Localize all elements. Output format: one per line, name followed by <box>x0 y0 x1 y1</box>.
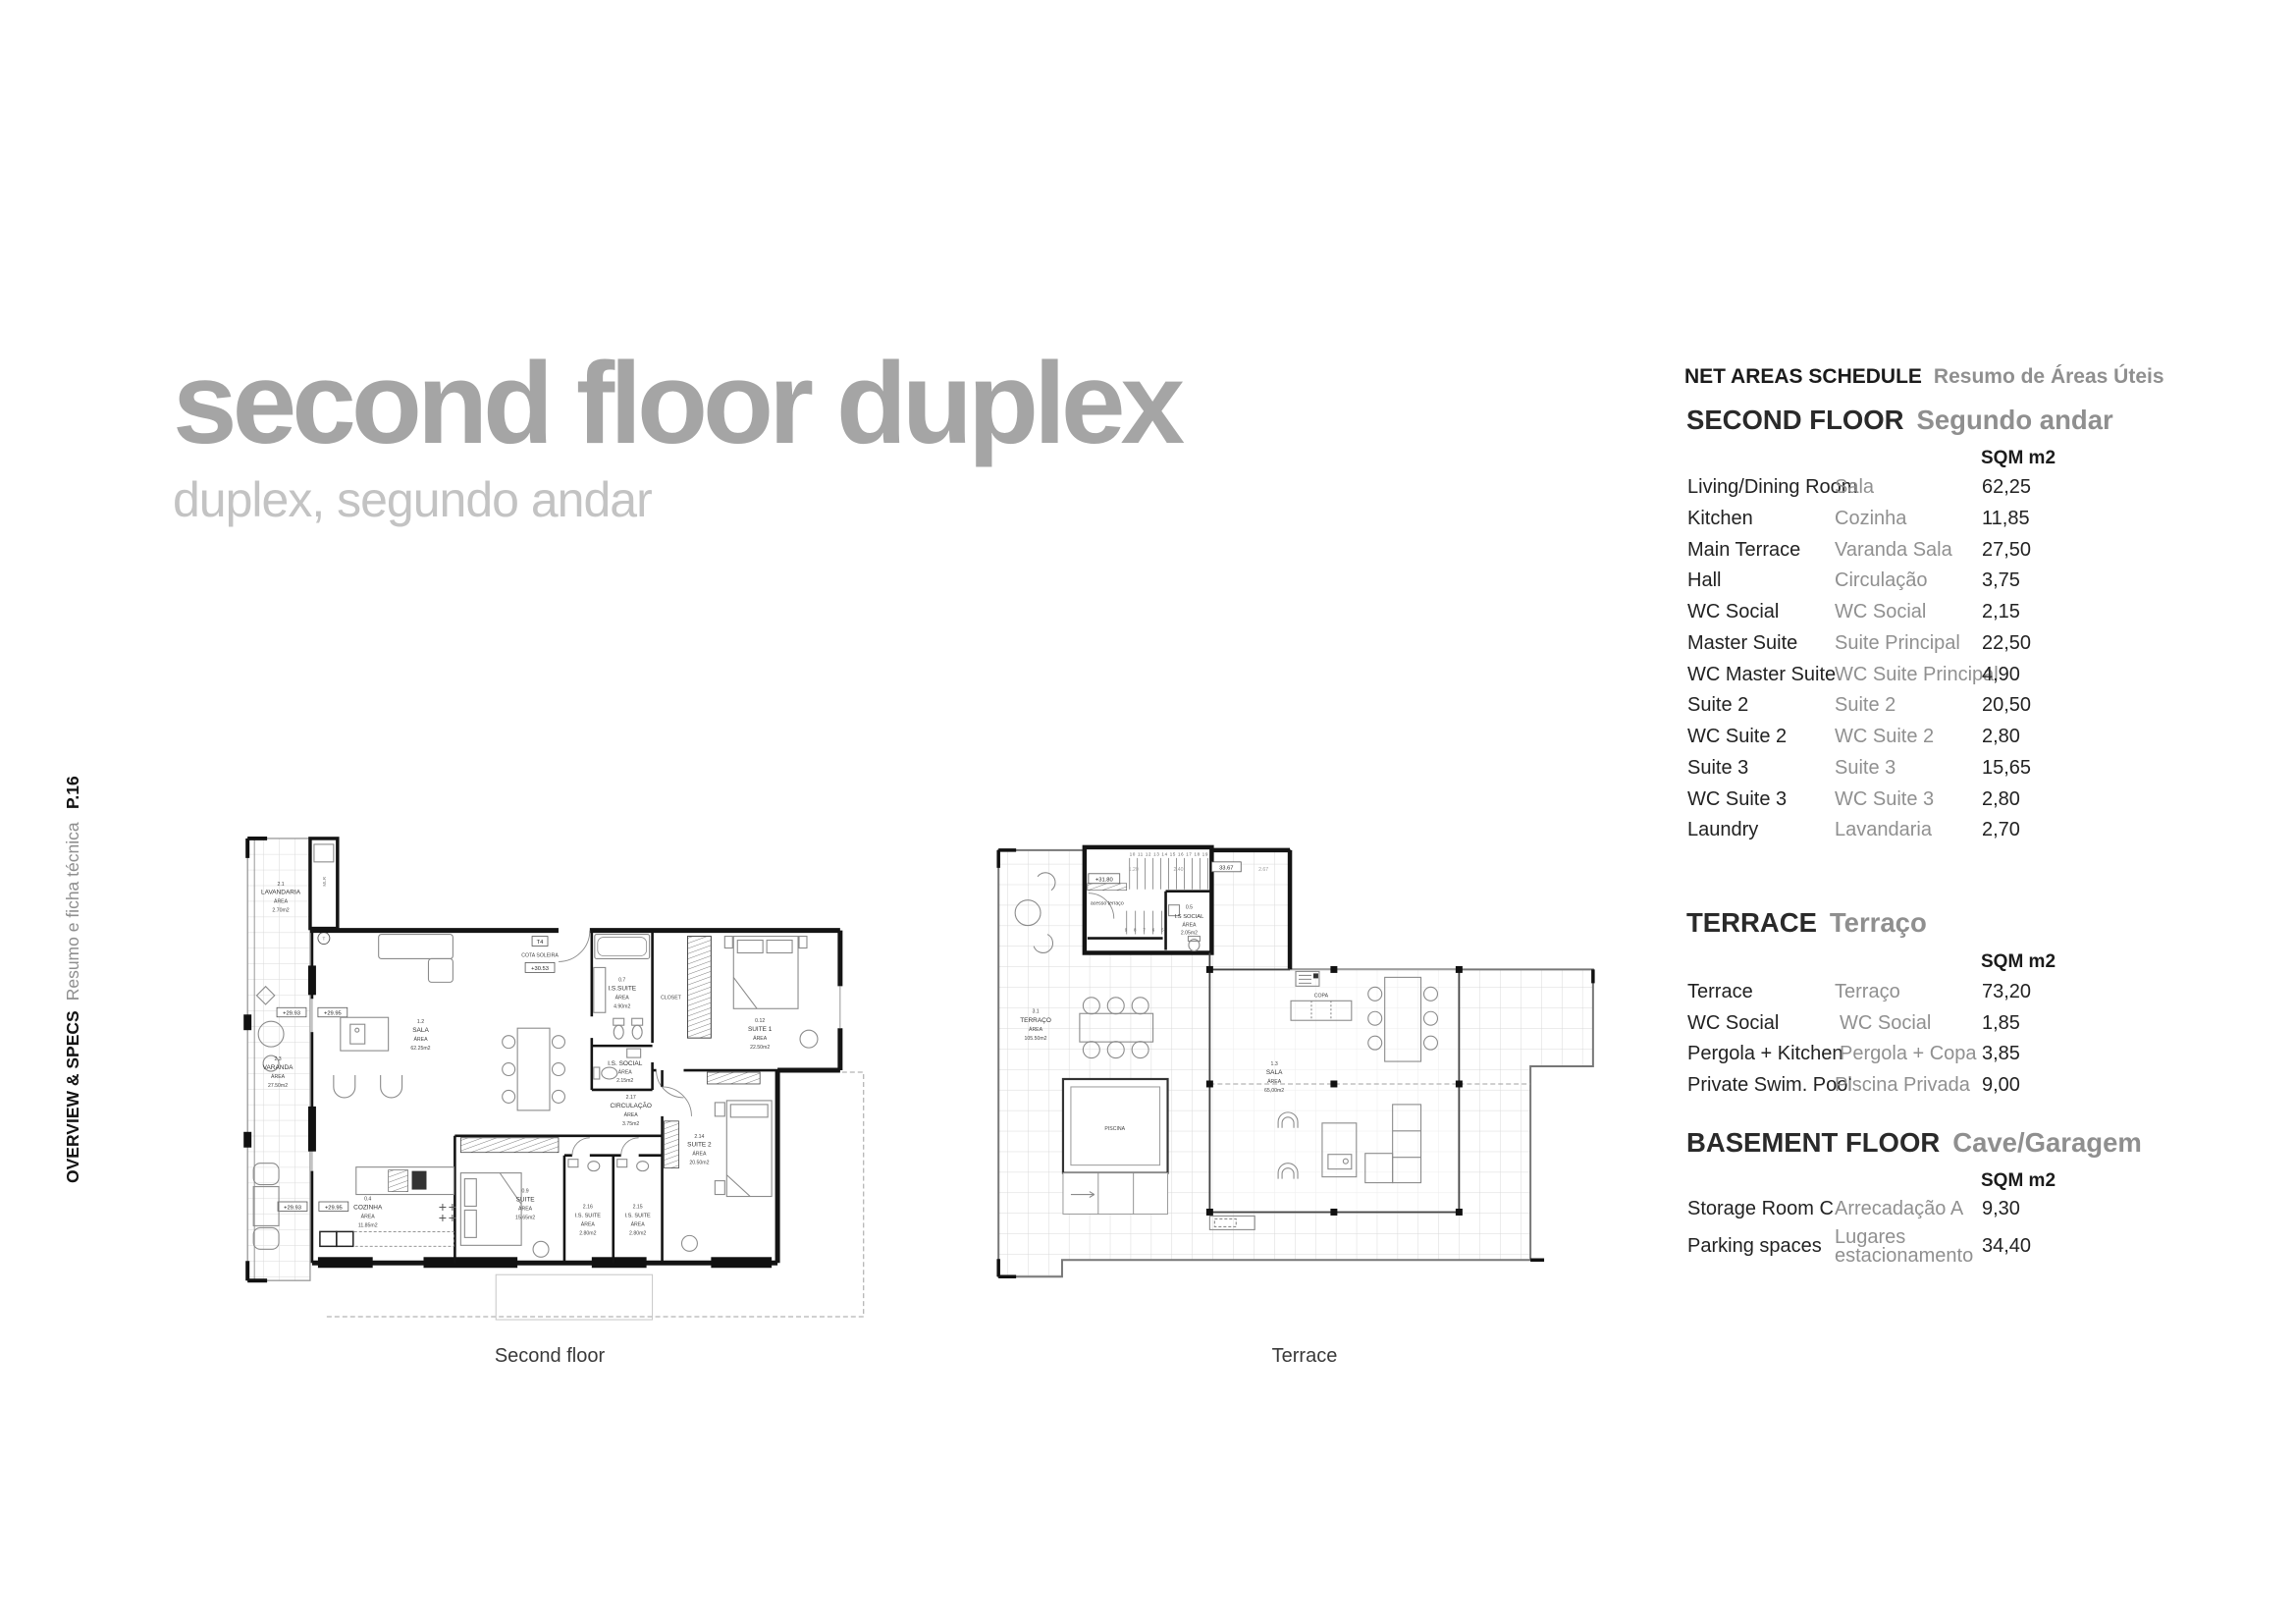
label-circulacao: 2.17 CIRCULAÇÃO ÁREA 3.75m2 <box>610 1095 651 1127</box>
label-is-social: I.S. SOCIAL ÁREA 2.15m2 <box>608 1060 643 1084</box>
row-en: Laundry <box>1687 819 1758 841</box>
page-number: P.16 <box>63 776 83 809</box>
row-sqm: 20,50 <box>1982 694 2031 717</box>
row-pt: WC Suite 2 <box>1835 726 1934 748</box>
svg-text:SUITE 2: SUITE 2 <box>687 1142 712 1149</box>
row-pt: Sala <box>1835 476 1874 499</box>
table-row: Living/Dining RoomSala62,25 <box>1681 476 2171 508</box>
svg-text:I.S. SUITE: I.S. SUITE <box>625 1213 652 1218</box>
svg-text:SUITE 1: SUITE 1 <box>748 1026 773 1033</box>
table-row: Suite 2Suite 220,50 <box>1681 694 2171 726</box>
svg-text:3.75m2: 3.75m2 <box>622 1121 639 1127</box>
label-suite1: 0.12 SUITE 1 ÁREA 22.50m2 <box>748 1018 773 1051</box>
row-en: Living/Dining Room <box>1687 476 1857 499</box>
caption-second-floor: Second floor <box>232 1345 868 1368</box>
svg-text:ÁREA: ÁREA <box>615 994 630 1001</box>
row-sqm: 3,85 <box>1982 1043 2020 1065</box>
svg-text:ÁREA: ÁREA <box>618 1069 633 1076</box>
suite3-bed <box>460 1173 521 1246</box>
dim-240: 2.40 <box>1173 867 1183 873</box>
svg-text:105.50m2: 105.50m2 <box>1025 1036 1047 1042</box>
svg-text:3.1: 3.1 <box>1032 1008 1039 1014</box>
row-pt: Piscina Privada <box>1835 1074 1970 1097</box>
svg-text:SALA: SALA <box>412 1027 429 1034</box>
row-en: WC Social <box>1687 1012 1779 1035</box>
svg-text:15.65m2: 15.65m2 <box>515 1215 535 1220</box>
svg-text:0.12: 0.12 <box>755 1018 765 1024</box>
second-floor-plan-drawing: MLR T 2.1 LAVANDARIA ÁREA 2.70m2 T4 COTA… <box>232 823 868 1331</box>
svg-text:I.S.SUITE: I.S.SUITE <box>608 985 636 992</box>
label-is-suite: 0.7 I.S.SUITE ÁREA 4.90m2 <box>608 977 636 1009</box>
row-pt: Lugares estacionamento <box>1835 1228 1982 1266</box>
sqm-header: SQM m2 <box>1981 951 2056 973</box>
suite3-armchair <box>533 1241 549 1257</box>
lower-floor-outline <box>496 1274 652 1320</box>
wall-pillar <box>318 1257 373 1268</box>
sink-counter <box>594 967 606 1012</box>
row-en: Suite 2 <box>1687 694 1748 717</box>
row-sqm: 2,15 <box>1982 601 2020 623</box>
svg-text:0.5: 0.5 <box>1186 905 1193 911</box>
row-pt: Suite 2 <box>1835 694 1896 717</box>
svg-text:ÁREA: ÁREA <box>624 1111 639 1118</box>
toilet-bidet <box>614 1018 643 1039</box>
suite1-bed <box>724 937 807 1009</box>
svg-text:1.3: 1.3 <box>1271 1061 1278 1067</box>
label-suite3: 0.9 SUITE ÁREA 15.65m2 <box>515 1189 535 1221</box>
svg-text:CIRCULAÇÃO: CIRCULAÇÃO <box>610 1101 651 1110</box>
armchair <box>381 1075 402 1098</box>
svg-text:+29.93: +29.93 <box>284 1205 301 1211</box>
wall-pier <box>243 1014 251 1030</box>
wardrobe <box>460 1138 559 1153</box>
svg-text:ÁREA: ÁREA <box>692 1151 707 1158</box>
label-piscina: PISCINA <box>1104 1126 1125 1132</box>
row-sqm: 4,90 <box>1982 664 2020 686</box>
svg-text:TERRAÇO: TERRAÇO <box>1020 1017 1051 1024</box>
row-en: WC Suite 2 <box>1687 726 1787 748</box>
row-en: WC Social <box>1687 601 1779 623</box>
row-sqm: 1,85 <box>1982 1012 2020 1035</box>
row-pt: Lavandaria <box>1835 819 1932 841</box>
label-acesso: acesso terraço <box>1091 901 1124 907</box>
schedule-heading-en: NET AREAS SCHEDULE <box>1684 365 1922 388</box>
svg-text:ÁREA: ÁREA <box>631 1220 646 1227</box>
elevation-value: +31.80 <box>1095 877 1113 883</box>
svg-text:0.9: 0.9 <box>521 1189 528 1195</box>
pool-deck <box>1063 1173 1168 1215</box>
table-row: WC SocialWC Social1,85 <box>1681 1012 2171 1044</box>
row-pt: WC Suite 3 <box>1835 788 1934 811</box>
row-en: Kitchen <box>1687 508 1753 530</box>
net-areas-schedule: NET AREAS SCHEDULEResumo de Áreas Úteis … <box>1681 365 2171 1298</box>
svg-text:I.S. SOCIAL: I.S. SOCIAL <box>608 1060 643 1067</box>
svg-text:SALA: SALA <box>1266 1069 1283 1076</box>
table-row: KitchenCozinha11,85 <box>1681 508 2171 539</box>
svg-text:ÁREA: ÁREA <box>753 1035 768 1042</box>
sqm-header: SQM m2 <box>1981 1170 2056 1192</box>
wall-pier <box>308 965 316 995</box>
label-mlr: MLR <box>322 876 327 886</box>
svg-text:COTA SOLEIRA: COTA SOLEIRA <box>521 952 559 958</box>
svg-text:65,00m2: 65,00m2 <box>1264 1088 1284 1094</box>
wardrobe <box>665 1121 679 1168</box>
svg-text:2.80m2: 2.80m2 <box>579 1230 596 1236</box>
svg-text:2.17: 2.17 <box>626 1095 636 1101</box>
table-row: Main TerraceVaranda Sala27,50 <box>1681 539 2171 570</box>
page-subtitle: duplex, segundo andar <box>173 471 1180 528</box>
table-row: Parking spacesLugares estacionamento34,4… <box>1681 1235 2171 1286</box>
svg-text:ÁREA: ÁREA <box>361 1213 376 1219</box>
row-en: Parking spaces <box>1687 1235 1822 1258</box>
dim-267: 2.67 <box>1258 867 1268 873</box>
row-en: Suite 3 <box>1687 757 1748 780</box>
section-title-pt: Segundo andar <box>1917 405 2113 435</box>
svg-text:2.1: 2.1 <box>277 882 284 888</box>
table-row: TerraceTerraço73,20 <box>1681 981 2171 1012</box>
stair-numbers-upper: 10 11 12 13 14 15 16 17 18 19 <box>1130 851 1208 856</box>
wardrobe <box>707 1072 760 1084</box>
label-cota-soleira: T4 COTA SOLEIRA +30.53 <box>521 937 559 973</box>
row-pt: Cozinha <box>1835 508 1906 530</box>
row-en: Hall <box>1687 569 1721 592</box>
bottom-room-walls <box>454 1136 662 1264</box>
row-en: Master Suite <box>1687 632 1797 655</box>
svg-text:ÁREA: ÁREA <box>1029 1026 1043 1033</box>
title-block: second floor duplex duplex, segundo anda… <box>173 346 1180 528</box>
svg-text:T4: T4 <box>537 940 545 946</box>
row-pt: Suite Principal <box>1835 632 1960 655</box>
row-pt: WC Social <box>1840 1012 1931 1035</box>
svg-text:2.05m2: 2.05m2 <box>1181 931 1198 937</box>
door-arcs <box>572 1138 639 1156</box>
stair-numbers-lower: 9 8 7 6 5 <box>1125 928 1164 933</box>
wall-pillar <box>711 1257 772 1268</box>
pergola-floor <box>1209 969 1459 1212</box>
tv-cabinet <box>341 1017 389 1051</box>
entry-door-arc <box>559 931 590 962</box>
table-row: WC Suite 2WC Suite 22,80 <box>1681 726 2171 757</box>
label-closet: CLOSET <box>661 995 682 1001</box>
svg-text:2.14: 2.14 <box>694 1134 704 1140</box>
row-en: Pergola + Kitchen <box>1687 1043 1842 1065</box>
table-row: Suite 3Suite 315,65 <box>1681 757 2171 788</box>
svg-text:20.50m2: 20.50m2 <box>689 1161 709 1166</box>
schedule-heading-pt: Resumo de Áreas Úteis <box>1934 365 2164 388</box>
row-en: WC Master Suite <box>1687 664 1836 686</box>
label-cozinha: 0.4 COZINHA ÁREA 11.85m2 <box>353 1197 383 1229</box>
row-sqm: 2,80 <box>1982 726 2020 748</box>
svg-text:COZINHA: COZINHA <box>353 1204 383 1211</box>
wall-pier <box>243 1132 251 1148</box>
dim-3367: 33.67 <box>1219 865 1233 871</box>
row-sqm: 11,85 <box>1982 508 2030 530</box>
svg-text:2.15m2: 2.15m2 <box>616 1078 633 1084</box>
svg-text:4.90m2: 4.90m2 <box>614 1003 630 1009</box>
svg-text:+29.95: +29.95 <box>325 1205 343 1211</box>
svg-text:SUITE: SUITE <box>516 1197 536 1204</box>
floor-plan-second-floor: MLR T 2.1 LAVANDARIA ÁREA 2.70m2 T4 COTA… <box>232 823 868 1331</box>
label-suite2: 2.14 SUITE 2 ÁREA 20.50m2 <box>687 1134 712 1166</box>
section-title-second-floor: SECOND FLOORSegundo andar <box>1686 405 2113 436</box>
svg-text:ÁREA: ÁREA <box>274 898 289 905</box>
svg-text:27.50m2: 27.50m2 <box>268 1083 288 1089</box>
row-sqm: 34,40 <box>1982 1235 2031 1258</box>
wall-pillar <box>592 1257 647 1268</box>
wall-pier <box>308 1107 316 1152</box>
suite1-armchair <box>800 1030 818 1048</box>
svg-text:1.2: 1.2 <box>417 1019 424 1025</box>
caption-terrace: Terrace <box>986 1345 1624 1368</box>
row-sqm: 9,00 <box>1982 1074 2020 1097</box>
svg-text:0.7: 0.7 <box>618 977 625 983</box>
row-sqm: 27,50 <box>1982 539 2031 562</box>
table-row: WC Master SuiteWC Suite Principal4,90 <box>1681 664 2171 695</box>
table-row: Pergola + KitchenPergola + Copa3,85 <box>1681 1043 2171 1074</box>
section-title-en: BASEMENT FLOOR <box>1686 1127 1940 1158</box>
svg-text:I.S. SUITE: I.S. SUITE <box>575 1213 602 1218</box>
row-sqm: 62,25 <box>1982 476 2031 499</box>
terrace-plan-drawing: 10 11 12 13 14 15 16 17 18 19 +31.80 33.… <box>986 823 1624 1331</box>
section-title-terrace: TERRACETerraço <box>1686 907 1927 939</box>
section-label-pt: Resumo e ficha técnica <box>63 822 82 1001</box>
row-en: Private Swim. Pool <box>1687 1074 1852 1097</box>
armchair <box>334 1075 355 1098</box>
row-sqm: 73,20 <box>1982 981 2031 1003</box>
section-title-en: TERRACE <box>1686 907 1817 938</box>
svg-text:VARANDA: VARANDA <box>263 1064 294 1071</box>
window-openings <box>312 986 840 1170</box>
row-en: Storage Room C <box>1687 1198 1834 1220</box>
svg-text:ÁREA: ÁREA <box>1267 1078 1282 1085</box>
page-title: second floor duplex <box>173 346 1180 461</box>
svg-text:LAVANDARIA: LAVANDARIA <box>261 890 301 896</box>
svg-text:11.85m2: 11.85m2 <box>358 1222 378 1228</box>
stair-rail <box>1088 884 1127 891</box>
row-pt: WC Suite Principal <box>1835 664 1999 686</box>
label-wc-suite-left: 2.16 I.S. SUITE ÁREA 2.80m2 <box>575 1204 602 1236</box>
table-row: WC Suite 3WC Suite 32,80 <box>1681 788 2171 820</box>
svg-text:+29.95: +29.95 <box>324 1011 342 1017</box>
row-sqm: 2,80 <box>1982 788 2020 811</box>
table-row: Master SuiteSuite Principal22,50 <box>1681 632 2171 664</box>
suite2-bed <box>715 1101 772 1197</box>
section-title-pt: Cave/Garagem <box>1952 1127 2142 1158</box>
row-sqm: 3,75 <box>1982 569 2020 592</box>
sqm-header: SQM m2 <box>1981 448 2056 469</box>
floor-plan-terrace: 10 11 12 13 14 15 16 17 18 19 +31.80 33.… <box>986 823 1624 1331</box>
row-pt: Suite 3 <box>1835 757 1896 780</box>
row-sqm: 15,65 <box>1982 757 2031 780</box>
bathtub <box>595 935 650 959</box>
t-marker-label: T <box>322 937 325 942</box>
row-en: WC Suite 3 <box>1687 788 1787 811</box>
row-en: Terrace <box>1687 981 1753 1003</box>
label-copa: COPA <box>1314 993 1329 999</box>
section-title-en: SECOND FLOOR <box>1686 405 1904 435</box>
row-pt: Pergola + Copa <box>1840 1043 1977 1065</box>
row-pt: Terraço <box>1835 981 1900 1003</box>
section-title-basement: BASEMENT FLOORCave/Garagem <box>1686 1127 2142 1159</box>
row-pt: Varanda Sala <box>1835 539 1952 562</box>
svg-text:+29.93: +29.93 <box>283 1011 300 1017</box>
svg-text:62.25m2: 62.25m2 <box>410 1046 430 1052</box>
section-label-en: OVERVIEW & SPECS <box>63 1010 82 1183</box>
sofa <box>379 935 454 983</box>
sidebar-section-label: OVERVIEW & SPECSResumo e ficha técnica <box>63 822 83 1183</box>
row-sqm: 2,70 <box>1982 819 2020 841</box>
svg-text:0.4: 0.4 <box>364 1197 371 1203</box>
svg-text:22.50m2: 22.50m2 <box>750 1045 770 1051</box>
table-row: LaundryLavandaria2,70 <box>1681 819 2171 850</box>
row-sqm: 22,50 <box>1982 632 2031 655</box>
table-row: WC SocialWC Social2,15 <box>1681 601 2171 632</box>
svg-text:ÁREA: ÁREA <box>518 1205 533 1212</box>
svg-text:+30.53: +30.53 <box>531 966 549 972</box>
wc-fixtures <box>568 1160 649 1171</box>
label-wc-suite-right: 2.15 I.S. SUITE ÁREA 2.80m2 <box>625 1204 652 1236</box>
suite2-armchair <box>681 1235 697 1251</box>
svg-text:ÁREA: ÁREA <box>1182 922 1197 929</box>
wall-pillar <box>423 1257 517 1268</box>
svg-text:2.70m2: 2.70m2 <box>272 908 289 914</box>
svg-text:ÁREA: ÁREA <box>581 1220 596 1227</box>
row-sqm: 9,30 <box>1982 1198 2020 1220</box>
dim-120: 1.20 <box>1129 867 1139 873</box>
svg-text:2.16: 2.16 <box>583 1204 593 1210</box>
row-pt: Arrecadação A <box>1835 1198 1963 1220</box>
section-title-pt: Terraço <box>1830 907 1927 938</box>
table-row: Private Swim. PoolPiscina Privada9,00 <box>1681 1074 2171 1106</box>
svg-text:ÁREA: ÁREA <box>413 1036 428 1043</box>
dining-table <box>503 1028 565 1110</box>
svg-text:I.S SOCIAL: I.S SOCIAL <box>1175 914 1205 920</box>
row-pt: Circulação <box>1835 569 1927 592</box>
row-pt: WC Social <box>1835 601 1926 623</box>
svg-text:2.3: 2.3 <box>274 1056 281 1062</box>
schedule-heading: NET AREAS SCHEDULEResumo de Áreas Úteis <box>1684 365 2164 389</box>
table-row: HallCirculação3,75 <box>1681 569 2171 601</box>
svg-text:ÁREA: ÁREA <box>271 1073 286 1080</box>
svg-text:2.80m2: 2.80m2 <box>629 1230 646 1236</box>
table-row: Storage Room CArrecadação A9,30 <box>1681 1198 2171 1229</box>
svg-text:2.15: 2.15 <box>633 1204 643 1210</box>
label-sala: 1.2 SALA ÁREA 62.25m2 <box>410 1019 430 1052</box>
closet-wardrobe <box>687 937 711 1039</box>
row-en: Main Terrace <box>1687 539 1800 562</box>
door-arc <box>657 1070 684 1098</box>
